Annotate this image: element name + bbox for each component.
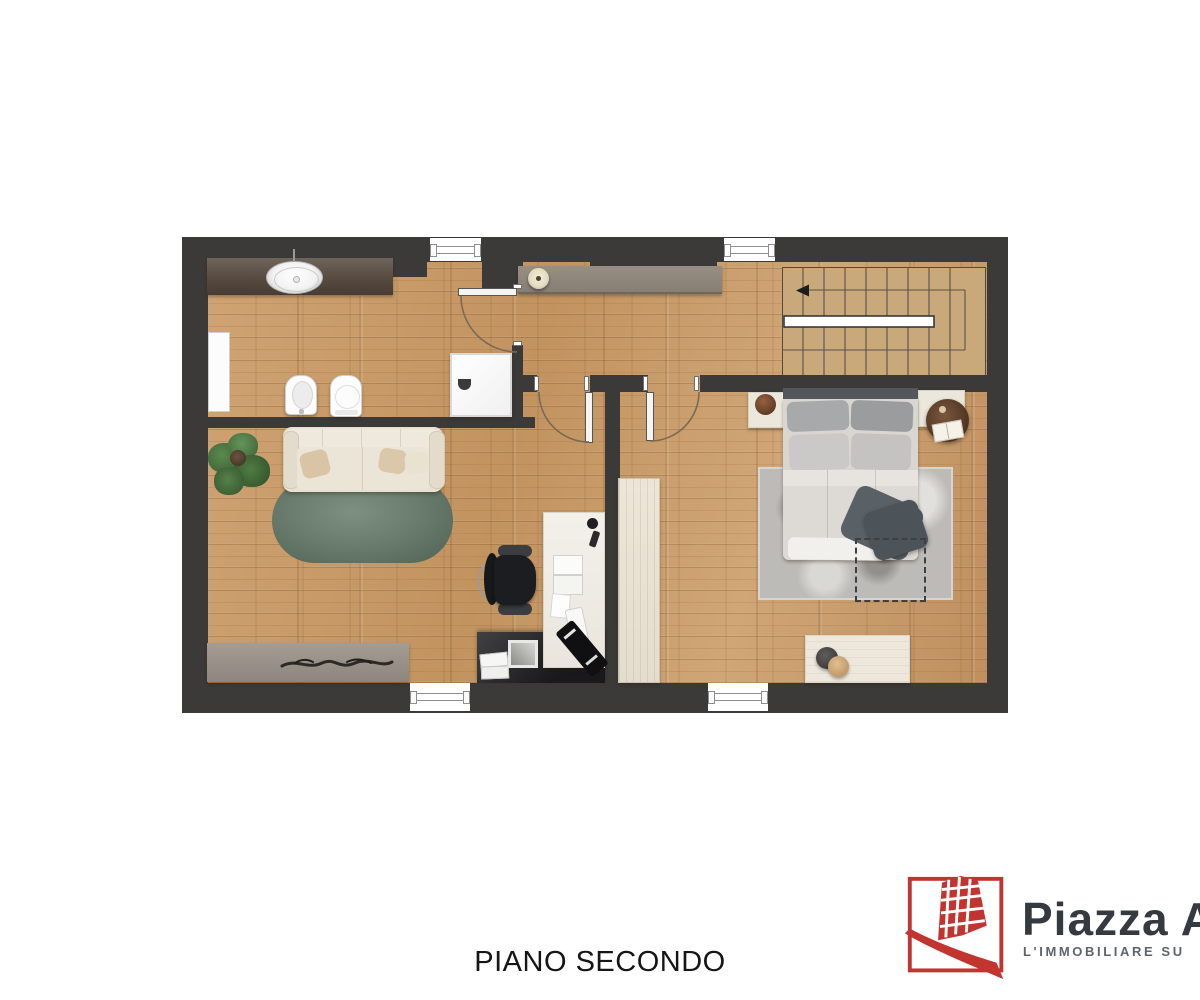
- wardrobe: [618, 478, 660, 683]
- window: [410, 683, 470, 711]
- shower-drain-icon: [458, 379, 471, 390]
- door-jamb: [534, 376, 539, 391]
- bed-pillow: [788, 433, 849, 471]
- piazza-affari-logo-icon: [902, 870, 1014, 989]
- window: [708, 683, 768, 711]
- antler-decor-icon: [277, 650, 397, 676]
- laptop-keys: [585, 654, 598, 665]
- page: PIANO SECONDO Piazza Af L'IMMOBILIARE SU: [0, 0, 1200, 1000]
- door-jamb: [584, 376, 589, 391]
- bidet-bowl: [292, 381, 313, 409]
- window: [724, 238, 775, 261]
- floor-plan: [182, 237, 1008, 713]
- ceiling-slope-dashed-line: [855, 538, 926, 602]
- bed-pillow: [850, 433, 911, 471]
- sofa: [283, 427, 443, 492]
- door-jamb: [513, 341, 522, 346]
- sofa-pillow: [404, 451, 430, 475]
- vase-icon: [755, 394, 776, 415]
- bathroom-door-leaf: [458, 288, 517, 296]
- bidet-tap-icon: [299, 409, 304, 414]
- laptop-keys: [563, 628, 576, 639]
- bidet: [285, 375, 317, 415]
- bed-pillow: [850, 400, 913, 432]
- window-glass-icon: [433, 246, 478, 254]
- sofa-armrest: [429, 431, 445, 489]
- desk-picture-frame: [508, 640, 538, 668]
- sofa-pillow: [377, 447, 407, 475]
- plants: [208, 433, 274, 499]
- desk-lamp-icon: [587, 518, 598, 529]
- window-glass-icon: [727, 246, 772, 254]
- wall-chimney-bump: [393, 262, 427, 277]
- window-glass-icon: [711, 693, 765, 701]
- hall-lamp-icon: [528, 268, 549, 289]
- sink-drain-icon: [293, 276, 300, 283]
- plant-leaf: [214, 467, 244, 495]
- candle-icon: [939, 406, 946, 413]
- pouf-tan-icon: [828, 656, 849, 677]
- sink-faucet-icon: [293, 249, 295, 262]
- staircase: [782, 267, 987, 376]
- bedroom-door-leaf: [646, 392, 654, 441]
- window-glass-icon: [413, 693, 467, 701]
- chair-seat: [494, 555, 536, 605]
- shower-tray: [450, 353, 512, 417]
- sideboard: [207, 643, 409, 682]
- toilet-lid-seam: [335, 385, 360, 409]
- wall-band-b: [590, 375, 648, 392]
- office-chair: [482, 545, 540, 617]
- bed-pillow: [786, 400, 849, 432]
- sofa-backrest: [285, 429, 441, 449]
- bathroom-radiator: [208, 332, 230, 412]
- wall-bathroom-east: [512, 345, 523, 428]
- toilet-cistern: [335, 410, 358, 415]
- living-door-leaf: [585, 392, 593, 443]
- logo-tagline-text: L'IMMOBILIARE SU: [1023, 944, 1185, 959]
- desk-paper-stack: [553, 575, 583, 595]
- logo-brand-text: Piazza Af: [1022, 892, 1200, 946]
- floor-title: PIANO SECONDO: [0, 946, 1200, 979]
- desk-books: [481, 666, 509, 680]
- door-jamb: [694, 376, 699, 391]
- desk-paper-stack: [553, 555, 583, 575]
- toilet: [330, 375, 362, 417]
- lamp-center-dot: [536, 276, 541, 281]
- bathroom-sink: [266, 261, 323, 294]
- bed-headboard: [783, 388, 918, 399]
- door-jamb: [643, 376, 648, 391]
- plant-pot: [230, 450, 246, 466]
- window: [430, 238, 481, 261]
